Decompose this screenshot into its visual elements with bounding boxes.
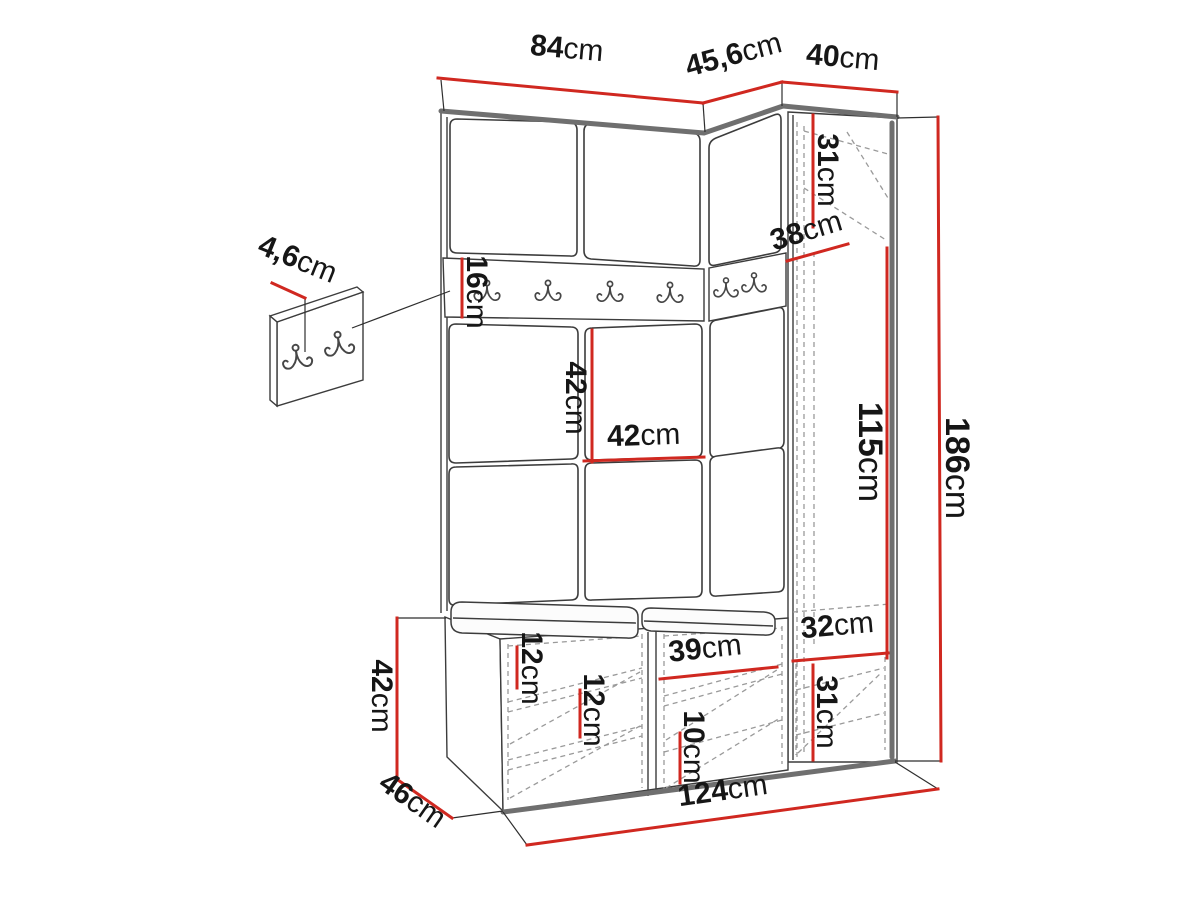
dim-panel-height: 42cm (559, 361, 592, 434)
dim-cabinet-bottom-width: 32cm (799, 606, 875, 645)
hook-panel-detail (270, 287, 450, 406)
furniture-dimension-diagram: 84cm 45,6cm 40cm 4,6cm 16cm 31cm 38cm 42… (0, 0, 1200, 899)
dim-top-angled-width: 45,6cm (682, 26, 786, 83)
dim-top-right-width: 40cm (805, 38, 881, 77)
dim-bench-depth: 46cm (373, 766, 452, 835)
wall-panels (441, 112, 784, 613)
dim-top-left-width: 84cm (529, 29, 605, 68)
dim-line-84 (438, 78, 703, 103)
diagram-canvas: 84cm 45,6cm 40cm 4,6cm 16cm 31cm 38cm 42… (0, 0, 1200, 899)
dim-line-40 (782, 82, 897, 92)
bench-left-side (445, 617, 503, 811)
dim-cushion-height: 12cm (515, 631, 548, 704)
dim-panel-width: 42cm (606, 418, 680, 454)
dim-cabinet-top-section: 31cm (811, 133, 844, 206)
leader-line (352, 291, 450, 328)
dim-middle-section: 115cm (851, 402, 889, 502)
dim-rail-height: 16cm (460, 255, 493, 328)
hook-rail (443, 253, 786, 321)
dim-bench-shelf-gap: 12cm (577, 673, 610, 746)
dim-bottom-shelf-gap: 10cm (677, 710, 710, 783)
dim-total-height: 186cm (938, 417, 976, 519)
dim-bench-height: 42cm (365, 659, 398, 732)
dim-cabinet-bottom-section: 31cm (810, 675, 843, 748)
dim-line-4-6 (272, 283, 305, 298)
dim-hook-panel-depth: 4,6cm (253, 229, 341, 290)
dim-line-45-6 (703, 82, 782, 103)
